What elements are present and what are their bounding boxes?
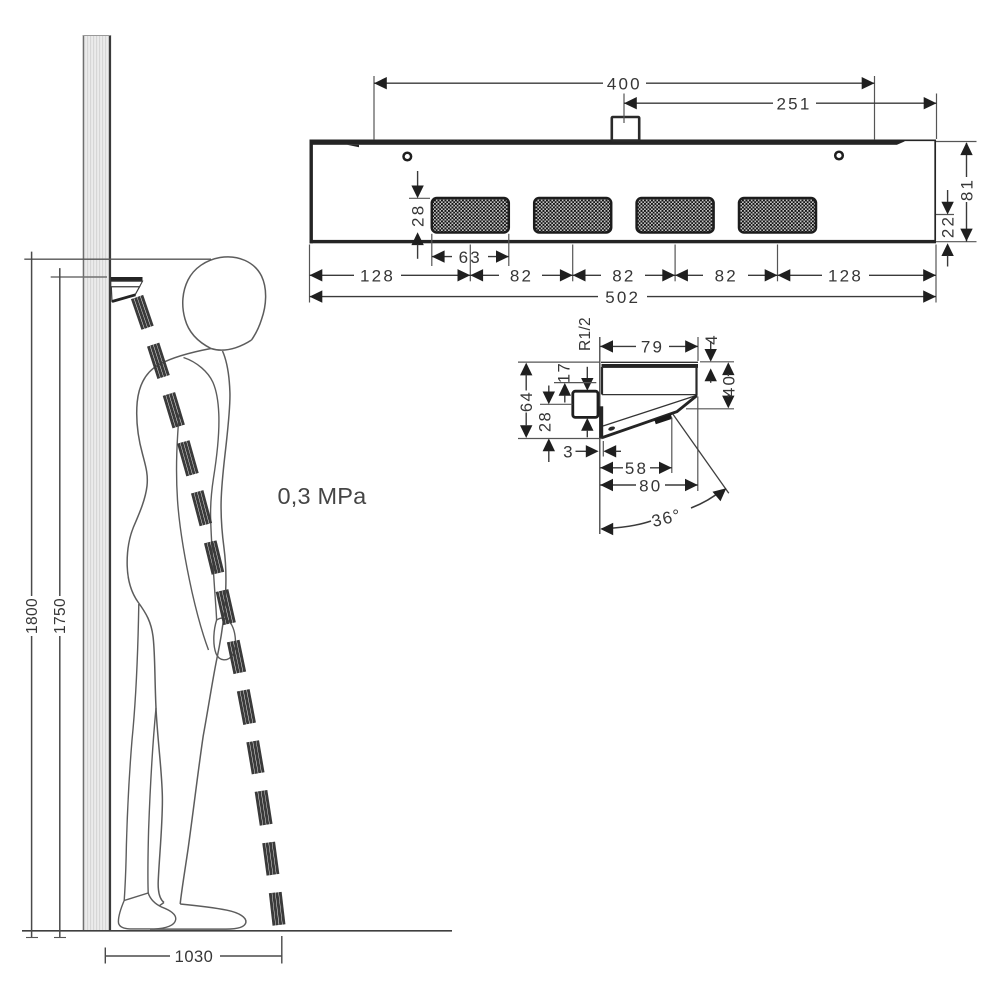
svg-text:81: 81 (958, 178, 977, 201)
svg-text:128: 128 (828, 267, 863, 286)
svg-text:1750: 1750 (52, 598, 69, 634)
svg-text:40: 40 (719, 374, 738, 397)
svg-text:64: 64 (518, 391, 536, 412)
svg-text:1030: 1030 (175, 948, 214, 966)
svg-text:80: 80 (639, 476, 662, 495)
svg-text:502: 502 (605, 288, 640, 307)
svg-text:17: 17 (556, 362, 574, 383)
svg-text:82: 82 (510, 267, 533, 286)
svg-text:36°: 36° (650, 505, 684, 531)
svg-text:82: 82 (715, 267, 738, 286)
svg-text:82: 82 (612, 267, 635, 286)
svg-text:22: 22 (939, 215, 958, 238)
svg-text:1800: 1800 (24, 598, 41, 634)
svg-text:400: 400 (607, 75, 642, 94)
svg-text:3: 3 (563, 443, 572, 462)
svg-text:28: 28 (536, 411, 554, 432)
svg-text:58: 58 (625, 459, 648, 478)
svg-text:28: 28 (409, 204, 428, 227)
svg-text:4: 4 (702, 333, 721, 345)
svg-text:0,3 MPa: 0,3 MPa (278, 483, 368, 509)
svg-text:R1/2: R1/2 (577, 317, 594, 351)
svg-text:79: 79 (641, 338, 664, 357)
svg-text:128: 128 (360, 267, 395, 286)
svg-text:251: 251 (777, 95, 812, 114)
